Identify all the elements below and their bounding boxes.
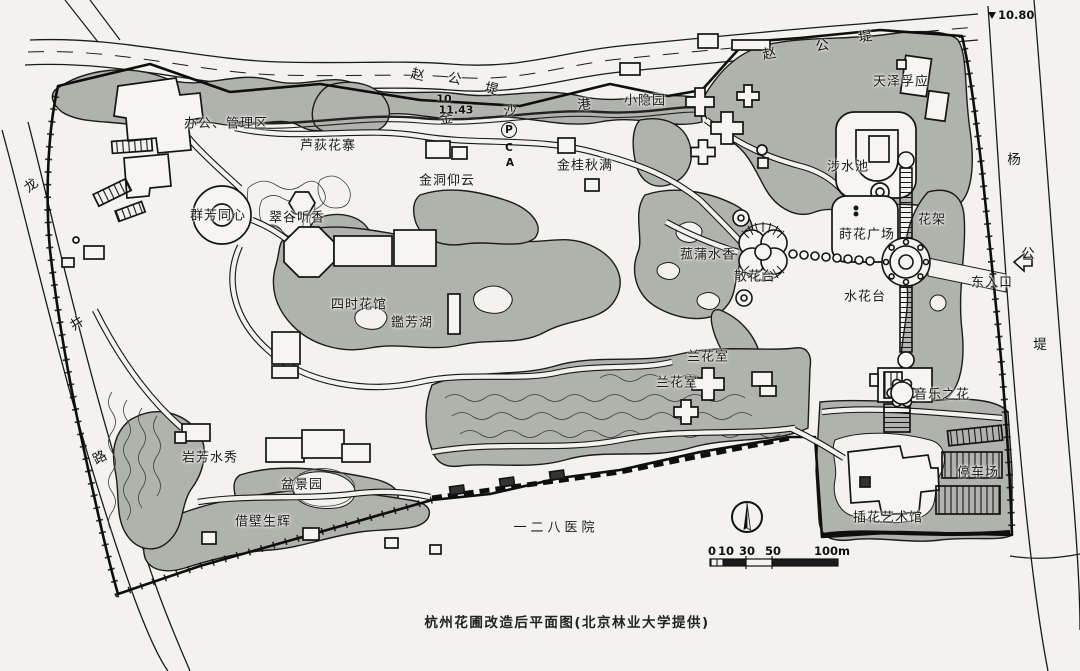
road-label-di: 堤 bbox=[1033, 333, 1047, 353]
label-tingche: 停车场 bbox=[957, 462, 999, 481]
label-cuigu: 翠谷听香 bbox=[269, 207, 325, 226]
stream-label-sha: 沙 bbox=[502, 98, 518, 119]
label-yanfang: 岩芳水秀 bbox=[182, 447, 238, 466]
map-drawing bbox=[0, 0, 1080, 671]
scale-30: 30 bbox=[739, 544, 755, 558]
label-jiebi: 借壁生辉 bbox=[235, 511, 291, 530]
stream-label-gang: 港 bbox=[576, 92, 592, 113]
label-chahua: 插花艺术馆 bbox=[853, 507, 923, 526]
marker-p: P bbox=[501, 122, 517, 138]
sishi-hall bbox=[284, 227, 334, 277]
label-sheshui: 涉水池 bbox=[827, 156, 869, 175]
scale-50: 50 bbox=[765, 544, 781, 558]
road-label-zhao-e1: 赵 bbox=[761, 41, 778, 63]
label-tianze: 天泽孚应 bbox=[873, 71, 929, 90]
label-shuihua: 水花台 bbox=[844, 286, 886, 305]
road-label-yang: 杨 bbox=[1007, 148, 1021, 168]
spot-elevation-1143: 11.43 bbox=[439, 104, 474, 117]
label-qunfang: 群芳同心 bbox=[190, 205, 246, 224]
label-huajia: 花架 bbox=[918, 209, 946, 228]
label-sishi: 四时花馆 bbox=[331, 294, 387, 313]
map-caption: 杭州花圃改造后平面图(北京林业大学提供) bbox=[424, 611, 709, 631]
label-jindong: 金洞仰云 bbox=[419, 170, 475, 189]
marker-c: C bbox=[505, 142, 513, 154]
label-lanhua-a: 兰花室 bbox=[687, 346, 729, 365]
road-label-zhao-e3: 堤 bbox=[857, 24, 874, 46]
north-arrow-icon bbox=[732, 502, 762, 532]
scale-100m: 100m bbox=[814, 544, 850, 558]
label-hospital: 一二八医院 bbox=[513, 517, 598, 536]
road-label-gong: 公 bbox=[1021, 242, 1035, 262]
label-ludi: 芦荻花寨 bbox=[300, 135, 356, 154]
road-label-zhao-e2: 公 bbox=[814, 33, 831, 55]
label-yinyue: 音乐之花 bbox=[914, 384, 970, 403]
marker-a: A bbox=[506, 157, 514, 169]
label-office-area: 办公、管理区 bbox=[184, 113, 268, 132]
parking-row bbox=[936, 486, 1000, 514]
label-dongrukou: 东入口 bbox=[971, 272, 1013, 291]
label-sanhua: 散花台 bbox=[734, 266, 776, 285]
site-plan-scan: 办公、管理区 芦荻花寨 群芳同心 翠谷听香 金洞仰云 金桂秋满 小隐园 天泽孚应… bbox=[0, 0, 1080, 671]
benchmark-triangle-icon bbox=[988, 12, 996, 19]
label-xiaoyin: 小隐园 bbox=[624, 90, 666, 109]
label-gupu: 菰蒲水香 bbox=[680, 244, 736, 263]
label-shihua: 莳花广场 bbox=[839, 224, 895, 243]
label-lanhua-b: 兰花室 bbox=[656, 372, 698, 391]
label-penjing: 盆景园 bbox=[281, 474, 323, 493]
benchmark-elevation: 10.80 bbox=[988, 8, 1034, 22]
scale-10: 10 bbox=[718, 544, 734, 558]
label-jingui: 金桂秋满 bbox=[557, 155, 613, 174]
scale-0: 0 bbox=[708, 544, 716, 558]
label-jianfang: 鑑芳湖 bbox=[391, 312, 433, 331]
